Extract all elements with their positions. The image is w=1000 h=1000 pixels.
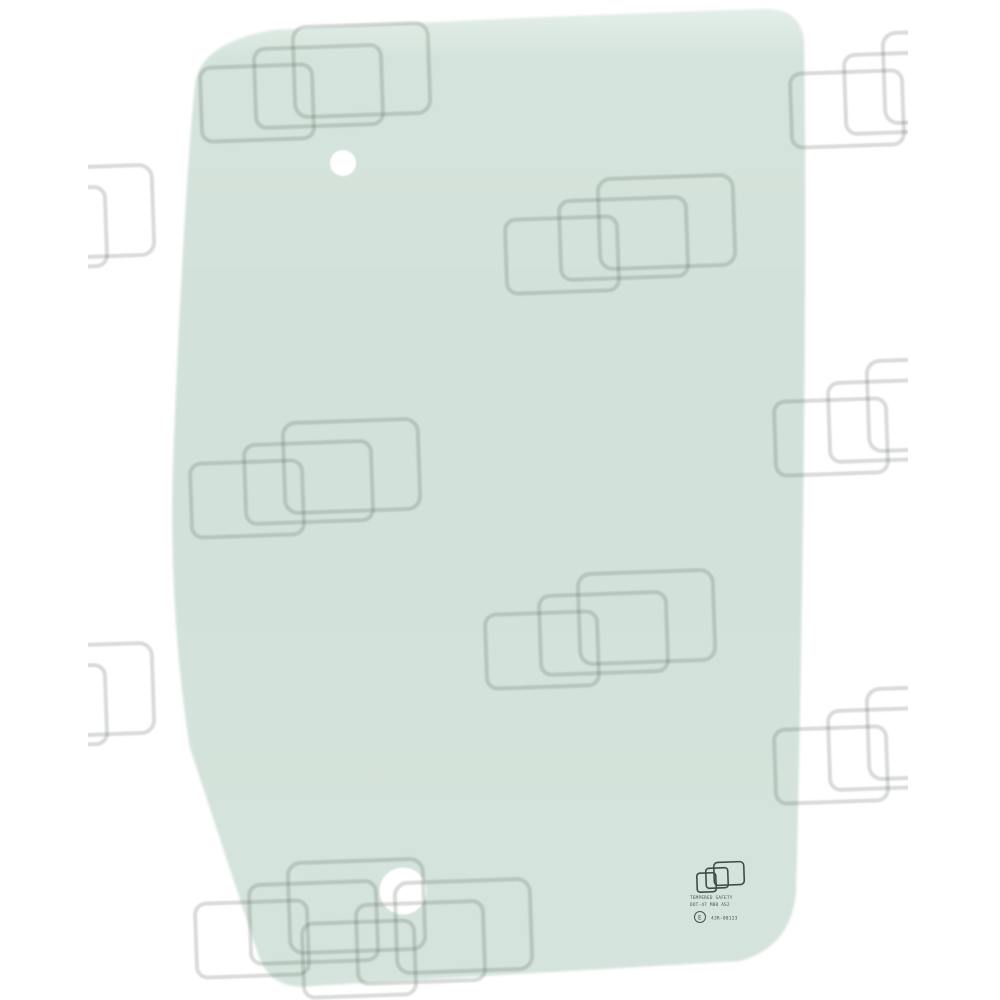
watermark-tile bbox=[0, 643, 155, 762]
stamp-line-1: TEMPERED SAFETY bbox=[690, 895, 733, 901]
glass-panel bbox=[172, 9, 805, 987]
watermark-tile bbox=[774, 685, 1000, 804]
watermark-tile bbox=[790, 29, 1000, 148]
stamp-line-2: DOT-47 M88 AS2 bbox=[690, 902, 730, 908]
glass-panel-scene: TEMPERED SAFETY DOT-47 M88 AS2 E 43R-001… bbox=[0, 0, 1000, 1000]
lower-mounting-hole bbox=[380, 868, 427, 915]
e-mark-letter: E bbox=[698, 915, 702, 922]
watermark-tile bbox=[774, 357, 1000, 476]
product-photo: TEMPERED SAFETY DOT-47 M88 AS2 E 43R-001… bbox=[0, 0, 1000, 1000]
upper-mounting-hole bbox=[330, 150, 356, 176]
watermark-tile bbox=[0, 165, 155, 284]
stamp-line-3: 43R-00123 bbox=[711, 916, 738, 922]
